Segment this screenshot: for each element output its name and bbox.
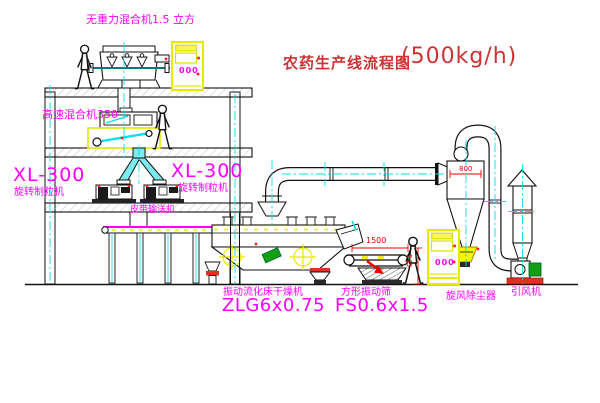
- control-cabinet-2: [428, 230, 459, 284]
- diagram-title-capacity: (500kg/h): [401, 44, 517, 69]
- cabinet1-display: 000: [179, 66, 199, 75]
- diagram-canvas: 无重力混合机1.5 立方 高速混合机350 XL-300 旋转制粒机 XL-30…: [0, 0, 600, 403]
- dimension-screen-length: 1500: [366, 236, 386, 245]
- gravity-mixer: [89, 46, 170, 88]
- draft-fan: [507, 261, 543, 284]
- label-granulator1-model: XL-300: [13, 166, 85, 185]
- label-gravity-mixer: 无重力混合机1.5 立方: [86, 14, 195, 25]
- label-belt-conveyor: 皮带输送机: [130, 206, 175, 215]
- label-cyclone-name: 旋风除尘器: [446, 292, 496, 302]
- label-granulator1-name: 旋转制粒机: [14, 188, 64, 198]
- worker-figure-1: [75, 45, 94, 88]
- dimension-screen-height: 545: [405, 254, 413, 267]
- fluid-bed-dryer: [205, 217, 345, 284]
- label-fan-name: 引风机: [511, 288, 541, 298]
- label-speed-mixer: 高速混合机350: [42, 109, 118, 120]
- diagram-title: 农药生产线流程图: [283, 52, 411, 73]
- label-dryer-model: ZLG6x0.75: [222, 297, 325, 315]
- exhaust-stack: [508, 170, 536, 269]
- label-granulator2-model: XL-300: [171, 162, 243, 181]
- exhaust-duct: [258, 163, 452, 216]
- label-granulator2-name: 旋转制粒机: [178, 184, 228, 194]
- label-screen-model: FS0.6x1.5: [335, 297, 429, 315]
- cabinet2-display: 000: [435, 258, 455, 267]
- dimension-cyclone-width: 800: [459, 165, 472, 173]
- belt-conveyor: [102, 212, 218, 283]
- granulator-1: [92, 185, 136, 203]
